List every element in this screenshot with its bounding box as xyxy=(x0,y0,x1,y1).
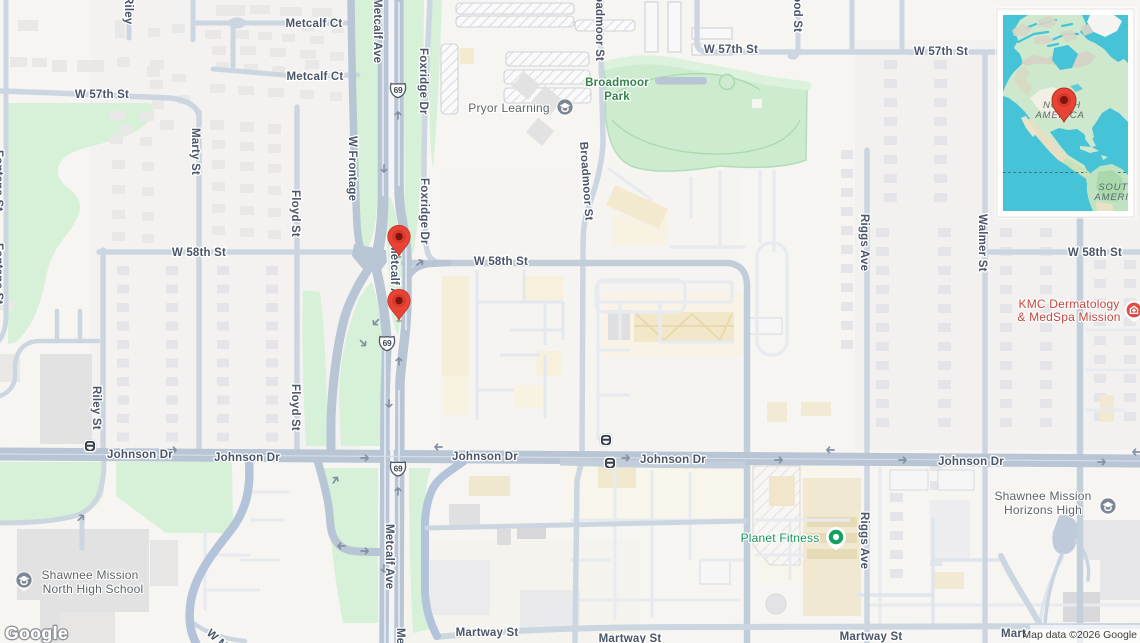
svg-text:Map data ©2026 Google: Map data ©2026 Google xyxy=(1022,629,1137,641)
svg-text:Shawnee Mission: Shawnee Mission xyxy=(41,568,138,582)
svg-text:Johnson Dr: Johnson Dr xyxy=(107,449,173,461)
svg-text:Horizons High: Horizons High xyxy=(1004,503,1082,517)
svg-text:Foxridge Dr: Foxridge Dr xyxy=(418,178,430,245)
svg-text:69: 69 xyxy=(383,338,392,348)
svg-text:Planet Fitness: Planet Fitness xyxy=(741,531,820,545)
svg-text:Marty St: Marty St xyxy=(189,128,201,175)
svg-text:Metcalf: Metcalf xyxy=(394,628,406,643)
svg-text:W 58th St: W 58th St xyxy=(1068,247,1122,259)
svg-text:W Frontage: W Frontage xyxy=(346,136,358,201)
svg-text:Martway St: Martway St xyxy=(599,633,662,643)
svg-text:Park: Park xyxy=(604,91,630,103)
svg-text:Foxridge Dr: Foxridge Dr xyxy=(417,48,429,115)
svg-text:Google: Google xyxy=(5,623,68,643)
svg-text:Johnson Dr: Johnson Dr xyxy=(452,451,518,463)
svg-text:Riley: Riley xyxy=(122,0,134,25)
svg-text:Martway St: Martway St xyxy=(840,631,903,643)
svg-text:Metcalf Ct: Metcalf Ct xyxy=(287,71,344,83)
svg-text:Floyd St: Floyd St xyxy=(289,384,301,431)
svg-text:Johnson Dr: Johnson Dr xyxy=(938,456,1004,468)
svg-text:Martway St: Martway St xyxy=(456,627,519,639)
svg-text:KMC Dermatology: KMC Dermatology xyxy=(1018,297,1119,311)
svg-text:Riley St: Riley St xyxy=(90,386,102,430)
svg-text:Metcalf Ave: Metcalf Ave xyxy=(371,0,383,63)
svg-text:Walmer St: Walmer St xyxy=(976,214,988,272)
svg-text:Fontana St: Fontana St xyxy=(0,243,4,304)
svg-text:W 57th St: W 57th St xyxy=(914,46,968,58)
svg-text:& MedSpa Mission: & MedSpa Mission xyxy=(1017,310,1120,324)
svg-text:Metcalf Ct: Metcalf Ct xyxy=(286,18,343,30)
svg-text:69: 69 xyxy=(394,85,403,95)
svg-text:Pryor Learning: Pryor Learning xyxy=(468,101,550,115)
svg-text:W 57th St: W 57th St xyxy=(75,89,129,101)
svg-text:Johnson Dr: Johnson Dr xyxy=(640,454,706,466)
svg-text:W 58th St: W 58th St xyxy=(474,256,528,268)
svg-text:Floyd St: Floyd St xyxy=(289,190,301,237)
svg-text:Broadmoor St: Broadmoor St xyxy=(593,0,605,61)
svg-text:wood St: wood St xyxy=(791,0,803,32)
svg-text:North High School: North High School xyxy=(43,582,144,596)
svg-text:Riggs Ave: Riggs Ave xyxy=(858,214,870,271)
svg-text:Fontana St: Fontana St xyxy=(0,150,4,211)
svg-text:Johnson Dr: Johnson Dr xyxy=(214,452,280,464)
svg-text:Shawnee Mission: Shawnee Mission xyxy=(994,489,1091,503)
svg-text:Riggs Ave: Riggs Ave xyxy=(858,512,870,569)
svg-text:Metcalf Ave: Metcalf Ave xyxy=(383,524,395,589)
svg-text:Broadmoor: Broadmoor xyxy=(585,77,649,89)
svg-text:W 57th St: W 57th St xyxy=(704,44,758,56)
svg-text:69: 69 xyxy=(394,463,403,473)
svg-text:W 58th St: W 58th St xyxy=(172,247,226,259)
